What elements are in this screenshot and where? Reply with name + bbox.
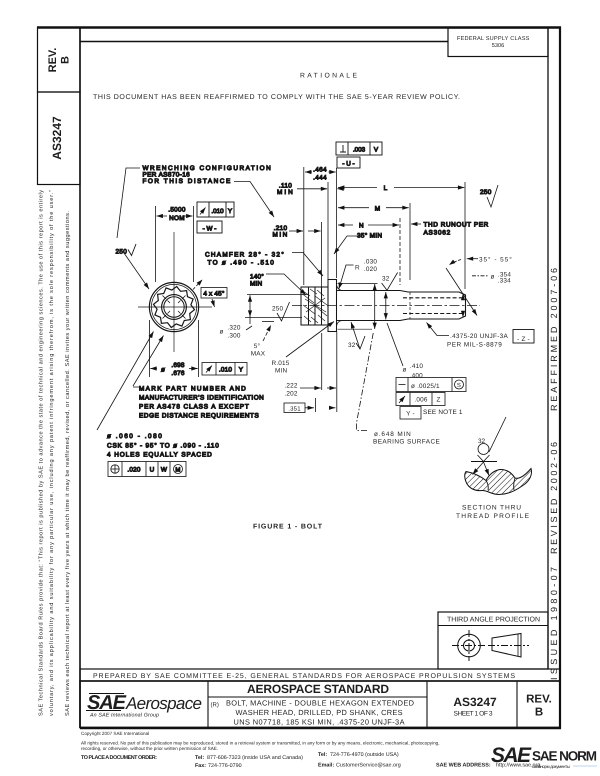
svg-text:AS3247: AS3247 xyxy=(50,116,64,160)
svg-text:MIN: MIN xyxy=(250,281,262,288)
svg-text:MAX: MAX xyxy=(251,351,266,358)
svg-text:ø .0025/1: ø .0025/1 xyxy=(411,383,440,390)
svg-text:ISSUED 1980-07: ISSUED 1980-07 xyxy=(549,567,559,680)
svg-text:32: 32 xyxy=(348,342,356,349)
svg-text:SAE Technical Standards Board: SAE Technical Standards Board Rules prov… xyxy=(38,190,45,716)
svg-text:AS3062: AS3062 xyxy=(424,230,451,237)
svg-text:R: R xyxy=(355,265,360,272)
svg-text:5306: 5306 xyxy=(492,43,504,49)
svg-text:.676: .676 xyxy=(171,370,184,377)
svg-text:THIS DOCUMENT HAS BEEN REAFFIR: THIS DOCUMENT HAS BEEN REAFFIRMED TO COM… xyxy=(93,94,460,101)
svg-text:ø.648 MIN: ø.648 MIN xyxy=(374,431,411,438)
svg-text:REV.: REV. xyxy=(526,694,552,706)
svg-text:voluntary, and its applicabili: voluntary, and its applicability and sui… xyxy=(48,190,55,716)
svg-text:S: S xyxy=(457,382,461,389)
svg-text:Email:: Email: xyxy=(318,763,334,769)
svg-text:.010: .010 xyxy=(219,367,232,374)
svg-text:250: 250 xyxy=(272,306,284,313)
svg-text:4 x 45°: 4 x 45° xyxy=(203,291,225,298)
svg-text:MANUFACTURER'S IDENTIFICATION: MANUFACTURER'S IDENTIFICATION xyxy=(139,395,264,402)
svg-text:B: B xyxy=(60,56,72,64)
svg-text:Y: Y xyxy=(239,367,244,374)
svg-text:724-776-4970 (outside USA): 724-776-4970 (outside USA) xyxy=(330,752,399,758)
svg-text:.003: .003 xyxy=(353,147,366,154)
svg-text:.006: .006 xyxy=(414,397,427,404)
svg-text:AS3247: AS3247 xyxy=(453,695,497,709)
svg-text:MIN: MIN xyxy=(277,189,293,196)
svg-text:.320: .320 xyxy=(227,325,240,332)
svg-text:SHEET 1 OF 3: SHEET 1 OF 3 xyxy=(454,711,493,718)
svg-text:SAE reviews each technical rep: SAE reviews each technical report at lea… xyxy=(64,211,71,716)
svg-text:.020: .020 xyxy=(127,467,140,474)
svg-text:UNS N07718, 185 KSI MIN, .4375: UNS N07718, 185 KSI MIN, .4375-20 UNJF-3… xyxy=(234,718,405,727)
svg-text:M: M xyxy=(175,467,180,474)
svg-text:U: U xyxy=(150,467,155,474)
svg-text:REAFFIRMED 2007-06: REAFFIRMED 2007-06 xyxy=(549,268,559,411)
svg-text:PER AS478 CLASS A EXCEPT: PER AS478 CLASS A EXCEPT xyxy=(139,404,249,411)
svg-text:TO ø .490 - .510: TO ø .490 - .510 xyxy=(208,260,275,267)
svg-text:.400: .400 xyxy=(410,373,423,380)
svg-text:All rights reserved. No part o: All rights reserved. No part of this pub… xyxy=(81,741,439,746)
svg-text:Z: Z xyxy=(436,397,440,404)
svg-text:.4375-20 UNJF-3A: .4375-20 UNJF-3A xyxy=(450,333,509,340)
svg-text:Copyright 2007 SAE Internation: Copyright 2007 SAE International xyxy=(81,731,149,736)
svg-text:ø: ø xyxy=(220,329,224,336)
svg-text:L: L xyxy=(384,185,388,192)
svg-text:M: M xyxy=(375,206,381,213)
svg-text:32: 32 xyxy=(382,276,390,283)
svg-text:TO PLACE A DOCUMENT ORDER:: TO PLACE A DOCUMENT ORDER: xyxy=(81,755,157,761)
svg-text:FIGURE 1 - BOLT: FIGURE 1 - BOLT xyxy=(253,524,323,531)
svg-text:R.015: R.015 xyxy=(272,360,290,367)
svg-text:.464: .464 xyxy=(313,167,327,174)
svg-text:RATIONALE: RATIONALE xyxy=(300,73,357,80)
svg-text:.010: .010 xyxy=(211,208,224,215)
svg-text:.300: .300 xyxy=(227,333,240,340)
svg-text:SECTION THRU: SECTION THRU xyxy=(462,505,521,512)
svg-text:REVISED 2002-06: REVISED 2002-06 xyxy=(549,442,559,554)
svg-text:.444: .444 xyxy=(313,175,327,182)
svg-text:(R): (R) xyxy=(211,702,219,709)
svg-text:FOR THIS DISTANCE: FOR THIS DISTANCE xyxy=(143,178,231,185)
svg-text:An SAE International Group: An SAE International Group xyxy=(89,713,159,719)
svg-text:877-606-7323 (inside USA and C: 877-606-7323 (inside USA and Canada) xyxy=(207,755,303,761)
svg-text:.020: .020 xyxy=(364,266,377,273)
svg-text:REV.: REV. xyxy=(47,48,59,73)
svg-text:SAE: SAE xyxy=(491,744,532,767)
svg-text:BOLT, MACHINE - DOUBLE HEXAGON: BOLT, MACHINE - DOUBLE HEXAGON EXTENDED xyxy=(226,699,414,708)
svg-text:Y -: Y - xyxy=(406,411,415,418)
svg-text:- U -: - U - xyxy=(342,161,354,168)
svg-text:35° - 55°: 35° - 55° xyxy=(479,257,512,264)
svg-text:.202: .202 xyxy=(284,391,297,398)
svg-text:Tel:: Tel: xyxy=(318,752,327,758)
svg-text:140°: 140° xyxy=(250,274,264,281)
svg-text:- W -: - W - xyxy=(203,226,217,233)
svg-text:EDGE DISTANCE REQUIREMENTS: EDGE DISTANCE REQUIREMENTS xyxy=(139,413,259,420)
svg-text:250: 250 xyxy=(116,249,128,256)
svg-text:PER MIL-S-8879: PER MIL-S-8879 xyxy=(447,342,502,349)
svg-text:.5000: .5000 xyxy=(168,207,186,214)
svg-text:Aerospace: Aerospace xyxy=(125,694,202,713)
svg-text:5°: 5° xyxy=(254,343,261,350)
svg-text:N: N xyxy=(359,223,364,230)
svg-text:PREPARED BY SAE COMMITTEE E-25: PREPARED BY SAE COMMITTEE E-25, GENERAL … xyxy=(93,673,515,680)
svg-text:35° MIN: 35° MIN xyxy=(357,233,382,240)
svg-text:ø: ø xyxy=(491,274,495,281)
svg-text:.698: .698 xyxy=(171,362,184,369)
svg-text:Tel:: Tel: xyxy=(195,755,204,761)
svg-text:.351: .351 xyxy=(288,406,301,413)
svg-text:MIN: MIN xyxy=(273,232,288,239)
svg-text:- Z -: - Z - xyxy=(517,336,530,343)
svg-text:CSK 85° - 95° TO ø .090 - .110: CSK 85° - 95° TO ø .090 - .110 xyxy=(107,443,219,450)
svg-text:FEDERAL SUPPLY CLASS: FEDERAL SUPPLY CLASS xyxy=(457,36,530,42)
svg-text:WASHER HEAD, DRILLED, PD SHANK: WASHER HEAD, DRILLED, PD SHANK, CRES xyxy=(236,708,403,717)
svg-text:MIN: MIN xyxy=(275,368,287,375)
svg-text:AEROSPACE STANDARD: AEROSPACE STANDARD xyxy=(247,682,389,696)
svg-text:MARK PART NUMBER AND: MARK PART NUMBER AND xyxy=(139,386,246,393)
svg-text:W: W xyxy=(161,467,168,474)
svg-text:724-776-0790: 724-776-0790 xyxy=(208,763,242,769)
svg-text:Fax:: Fax: xyxy=(195,763,206,769)
svg-text:.334: .334 xyxy=(498,278,511,285)
svg-text:Y: Y xyxy=(228,208,233,215)
svg-text:SAE WEB ADDRESS:: SAE WEB ADDRESS: xyxy=(436,763,491,769)
svg-text:NOM: NOM xyxy=(169,215,185,222)
svg-text:recording, or otherwise, witho: recording, or otherwise, without the pri… xyxy=(81,746,218,751)
svg-text:250: 250 xyxy=(480,189,492,196)
svg-text:ø: ø xyxy=(161,367,165,374)
svg-text:SEE NOTE 1: SEE NOTE 1 xyxy=(423,409,463,416)
svg-text:32: 32 xyxy=(478,438,486,445)
svg-text:B: B xyxy=(535,707,543,719)
svg-text:.222: .222 xyxy=(284,383,297,390)
svg-text:4 HOLES EQUALLY SPACED: 4 HOLES EQUALLY SPACED xyxy=(107,452,212,459)
svg-text:ø: ø xyxy=(403,367,407,374)
svg-text:.030: .030 xyxy=(364,259,377,266)
svg-text:SAE NORM: SAE NORM xyxy=(532,749,597,764)
svg-text:.410: .410 xyxy=(410,363,423,370)
svg-text:THIRD ANGLE PROJECTION: THIRD ANGLE PROJECTION xyxy=(447,617,540,624)
svg-text:саебнорм документы: саебнорм документы xyxy=(532,764,570,769)
svg-text:THD RUNOUT PER: THD RUNOUT PER xyxy=(424,222,489,229)
svg-text:CHAMFER 28° - 32°: CHAMFER 28° - 32° xyxy=(205,252,284,259)
svg-text:CustomerService@sae.org: CustomerService@sae.org xyxy=(336,763,401,769)
svg-text:V: V xyxy=(374,147,379,154)
svg-text:BEARING SURFACE: BEARING SURFACE xyxy=(373,439,440,446)
svg-text:THREAD PROFILE: THREAD PROFILE xyxy=(456,513,530,520)
svg-text:ø .060 - .080: ø .060 - .080 xyxy=(107,433,162,440)
